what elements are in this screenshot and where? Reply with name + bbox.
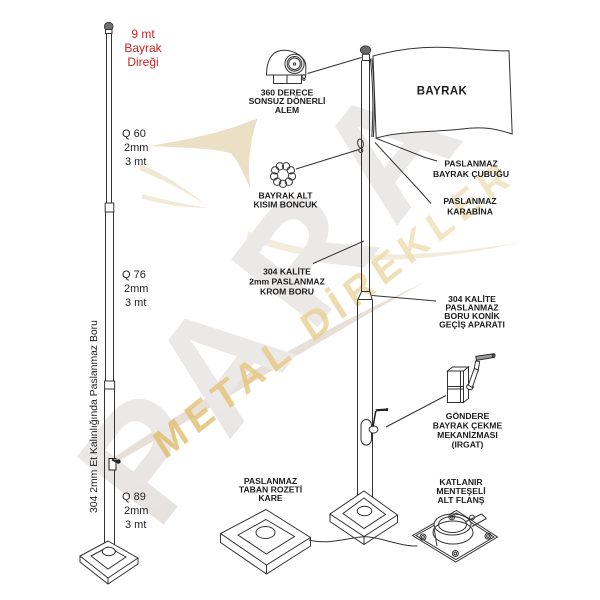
svg-text:Q 762mm3 mt: Q 762mm3 mt: [122, 269, 148, 309]
svg-text:KATLANIRMENTEŞELİALT FLANŞ: KATLANIRMENTEŞELİALT FLANŞ: [436, 477, 485, 505]
svg-text:BAYRAK: BAYRAK: [417, 86, 468, 98]
svg-text:Q 602mm3 mt: Q 602mm3 mt: [122, 128, 148, 168]
svg-text:304 2mm Et Kalınlığında Paslan: 304 2mm Et Kalınlığında Paslanmaz Boru: [89, 320, 100, 513]
svg-text:Q 892mm3 mt: Q 892mm3 mt: [122, 491, 148, 531]
svg-text:304 KALİTEPASLANMAZBORU KONİKG: 304 KALİTEPASLANMAZBORU KONİKGEÇİŞ APARA…: [439, 294, 505, 330]
svg-text:PASLANMAZBAYRAK ÇUBUĞU: PASLANMAZBAYRAK ÇUBUĞU: [433, 159, 509, 180]
svg-text:BAYRAK ALTKISIM BONCUK: BAYRAK ALTKISIM BONCUK: [254, 191, 319, 210]
svg-text:PASLANMAZKARABİNA: PASLANMAZKARABİNA: [443, 196, 496, 217]
